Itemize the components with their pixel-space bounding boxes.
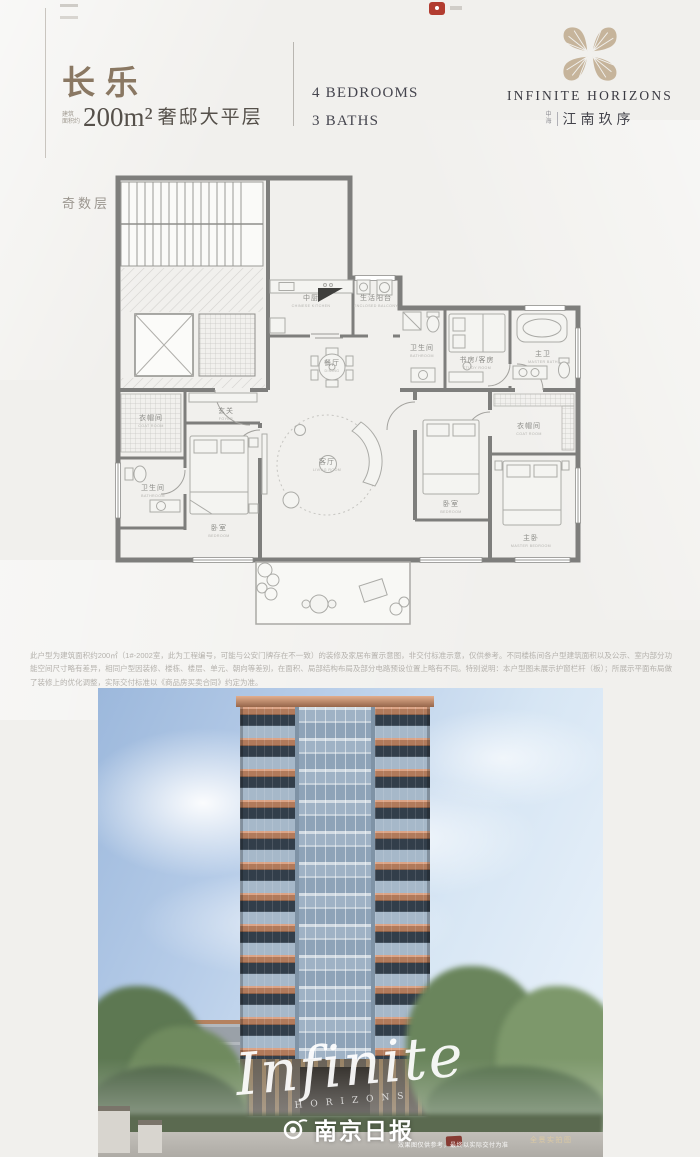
tower-body — [240, 707, 430, 1059]
room-sublabel: BEDROOM — [208, 534, 229, 538]
planter-box — [138, 1120, 162, 1153]
room-sublabel: BATHROOM — [410, 354, 434, 358]
red-badge-icon — [429, 2, 445, 15]
foyer-cabinet — [189, 393, 257, 402]
study-daybed — [449, 314, 505, 382]
room-sublabel: COAT ROOM — [516, 432, 541, 436]
room-label: 卫生间 — [410, 343, 434, 352]
brand-divider — [557, 112, 558, 126]
room-label: 餐厅 — [324, 358, 340, 367]
room-sublabel: DINING — [325, 369, 340, 373]
poster-page: 长乐 建筑 面积约 200m² 奢邸大平层 4 BEDROOMS 3 BATHS — [0, 0, 700, 1157]
stair-core — [121, 182, 265, 388]
disclaimer-text: 此户型为建筑面积约200㎡（1#-2002室，此为工程编号，可能与公安门牌存在不… — [30, 649, 672, 690]
brand-petal-logo-icon — [562, 26, 618, 82]
eye-logo-icon — [282, 1117, 308, 1141]
room-label: 中厨 — [303, 293, 319, 302]
brand-prefix-bottom: 海 — [545, 119, 551, 126]
area-line: 建筑 面积约 200m² 奢邸大平层 — [62, 102, 263, 131]
room-label: 卧室 — [211, 523, 227, 532]
room-sublabel: BATHROOM — [141, 494, 165, 498]
room-sublabel: MASTER BEDROOM — [511, 544, 551, 548]
tower-crown — [236, 696, 434, 707]
mid-rule-divider — [293, 42, 294, 126]
room-label: 卫生间 — [141, 483, 165, 492]
bedrooms-label: 4 BEDROOMS — [312, 80, 419, 108]
area-description: 奢邸大平层 — [158, 102, 263, 131]
brand-name-en: INFINITE HORIZONS — [490, 88, 690, 104]
master-coat-wardrobe — [494, 394, 574, 450]
room-label: 主卧 — [523, 533, 539, 542]
bed-symbol — [495, 461, 569, 525]
tower-glass-core — [295, 707, 375, 1059]
artifact-mark-icon — [450, 6, 462, 10]
press-watermark: 南京日报 — [282, 1112, 414, 1146]
room-label: 卧室 — [443, 499, 459, 508]
building-render-photo: Infinite HORIZONS 南京日报 效果图仅供参考，最终以实际交付为准… — [98, 688, 603, 1157]
plan-title: 长乐 — [62, 56, 148, 104]
coat-room-wardrobe — [121, 394, 181, 452]
room-sublabel: MASTER BATH — [528, 360, 558, 364]
room-label: 书房/客房 — [460, 355, 495, 364]
room-sublabel: ENCLOSED BALCONY — [354, 304, 399, 308]
area-prefix-top: 建筑 — [62, 112, 80, 119]
baths-label: 3 BATHS — [312, 108, 419, 136]
bed-symbol — [190, 436, 258, 514]
elevator-shaft — [199, 314, 255, 376]
brand-name-cn: 江南玖序 — [563, 109, 635, 129]
room-sublabel: FOYER — [219, 417, 233, 421]
floorplan-drawing: 中厨 CHINESE KITCHEN 生活阳台 ENCLOSED BALCONY… — [115, 168, 585, 630]
brand-prefix-top: 中 — [545, 112, 551, 119]
room-label: 客厅 — [319, 457, 335, 466]
room-sublabel: CHINESE KITCHEN — [292, 304, 331, 308]
photo-caption-right: 全景实拍图 — [530, 1135, 573, 1145]
room-sublabel: COAT ROOM — [138, 424, 163, 428]
photo-caption-left: 效果图仅供参考，最终以实际交付为准 — [398, 1140, 509, 1149]
area-prefix-bottom: 面积约 — [62, 119, 80, 126]
specs-block: 4 BEDROOMS 3 BATHS — [312, 80, 419, 136]
room-label: 主卫 — [535, 349, 551, 358]
bed-symbol — [423, 420, 479, 494]
floor-type-label: 奇数层 — [62, 193, 110, 212]
room-label: 生活阳台 — [360, 293, 392, 302]
room-label: 衣帽间 — [517, 421, 541, 430]
brand-prefix: 中 海 — [545, 112, 551, 126]
elevator — [135, 314, 193, 376]
room-sublabel: STUDY ROOM — [463, 366, 491, 370]
tower-wing-left — [240, 707, 295, 1059]
room-label: 衣帽间 — [139, 413, 163, 422]
laundry-fixtures — [357, 280, 392, 295]
brand-name-cn-row: 中 海 江南玖序 — [490, 109, 690, 129]
artifact-mark-icon — [60, 4, 78, 19]
room-sublabel: LIVING ROOM — [313, 468, 341, 472]
dining-table — [311, 348, 353, 387]
master-bath-fixtures — [513, 314, 570, 379]
left-rule-divider — [45, 8, 46, 158]
area-prefix: 建筑 面积约 — [62, 112, 80, 131]
room-sublabel: BEDROOM — [440, 510, 461, 514]
room-label: 玄关 — [218, 406, 234, 415]
area-value: 200m² — [83, 104, 153, 131]
brand-block: INFINITE HORIZONS 中 海 江南玖序 — [490, 26, 690, 129]
